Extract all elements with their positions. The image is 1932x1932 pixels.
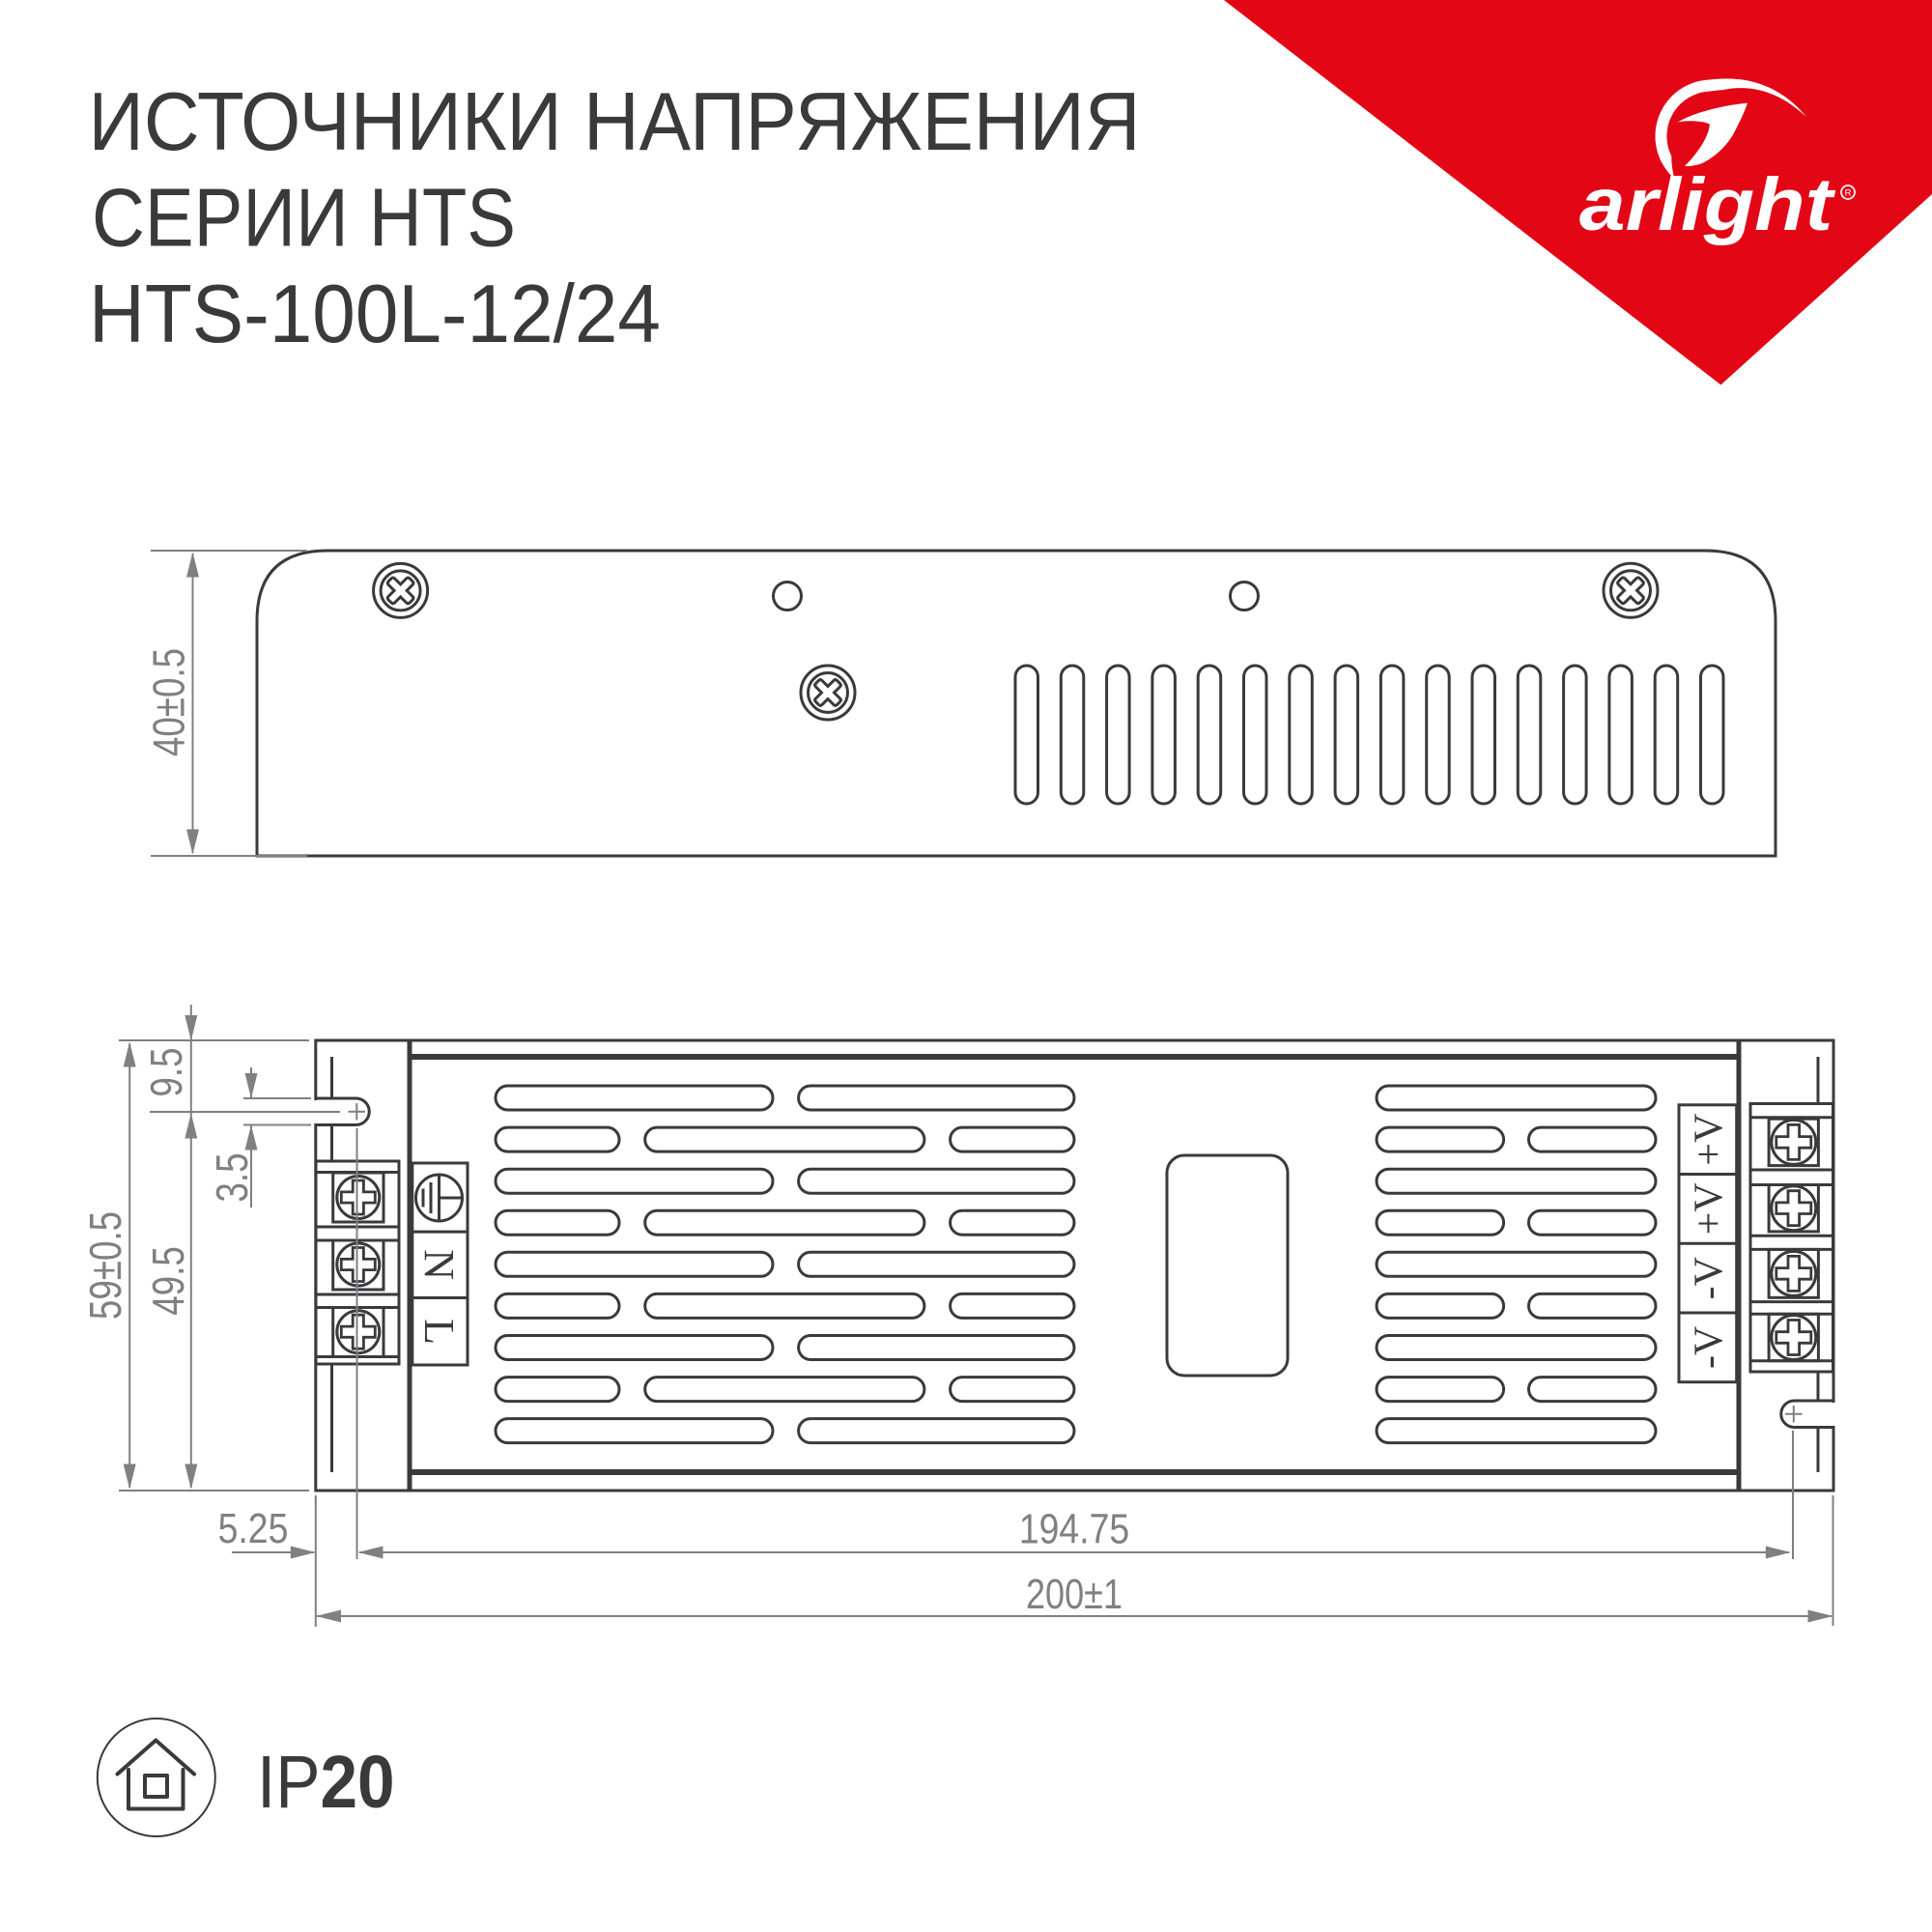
svg-text:5.25: 5.25 — [218, 1504, 289, 1552]
svg-text:200±1: 200±1 — [1026, 1571, 1122, 1618]
svg-text:49.5: 49.5 — [143, 1246, 193, 1316]
svg-text:59±0.5: 59±0.5 — [80, 1211, 130, 1320]
svg-text:3.5: 3.5 — [207, 1152, 257, 1202]
svg-text:arlight: arlight — [1579, 163, 1835, 246]
svg-text:СЕРИИ HTS: СЕРИИ HTS — [92, 173, 516, 265]
svg-text:+V: +V — [1688, 1114, 1732, 1166]
svg-text:R: R — [1845, 187, 1852, 198]
svg-text:N: N — [415, 1249, 463, 1280]
svg-text:HTS-100L-12/24: HTS-100L-12/24 — [89, 269, 661, 360]
svg-text:IP20: IP20 — [257, 1741, 395, 1824]
svg-text:9.5: 9.5 — [141, 1047, 191, 1096]
svg-text:40±0.5: 40±0.5 — [144, 648, 194, 756]
svg-text:+V: +V — [1688, 1182, 1732, 1235]
svg-text:194.75: 194.75 — [1019, 1505, 1129, 1553]
svg-text:ИСТОЧНИКИ НАПРЯЖЕНИЯ: ИСТОЧНИКИ НАПРЯЖЕНИЯ — [89, 76, 1141, 168]
svg-text:-V: -V — [1688, 1257, 1732, 1299]
svg-text:-V: -V — [1688, 1326, 1732, 1369]
svg-text:L: L — [415, 1319, 463, 1345]
